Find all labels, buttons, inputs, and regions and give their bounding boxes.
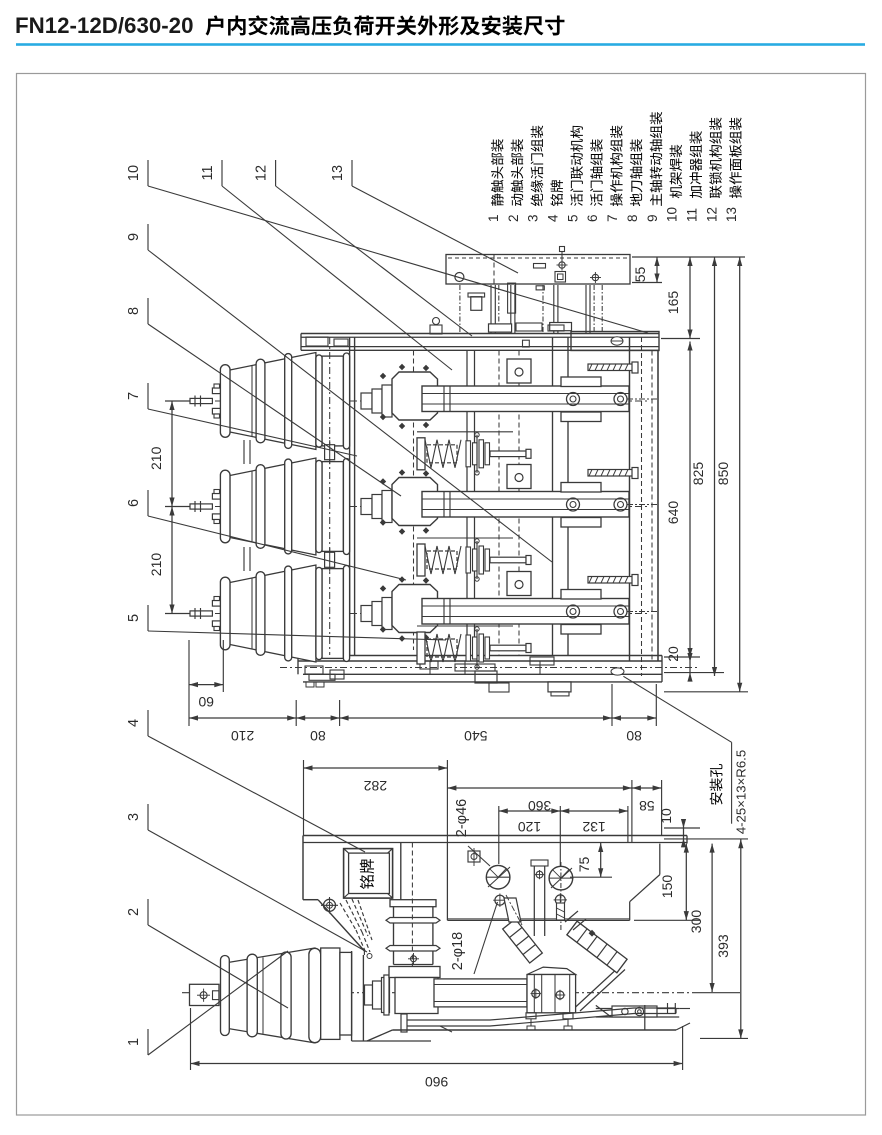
svg-text:5: 5 — [126, 614, 142, 622]
svg-text:210: 210 — [231, 728, 255, 744]
svg-text:11: 11 — [685, 208, 700, 222]
svg-text:132: 132 — [582, 819, 606, 835]
svg-text:640: 640 — [665, 501, 681, 525]
svg-text:540: 540 — [464, 728, 488, 744]
svg-text:850: 850 — [715, 462, 731, 486]
svg-text:55: 55 — [632, 267, 648, 283]
svg-text:58: 58 — [639, 798, 655, 814]
svg-text:6: 6 — [126, 499, 142, 507]
svg-text:5: 5 — [565, 214, 580, 222]
svg-text:9: 9 — [126, 233, 142, 241]
svg-text:1: 1 — [126, 1038, 142, 1046]
svg-text:6: 6 — [585, 214, 600, 222]
svg-text:11: 11 — [200, 165, 216, 180]
svg-text:300: 300 — [688, 910, 704, 934]
svg-text:165: 165 — [665, 291, 681, 315]
svg-text:9: 9 — [645, 214, 660, 222]
svg-text:4: 4 — [546, 214, 561, 222]
svg-text:3: 3 — [526, 214, 541, 222]
svg-text:210: 210 — [148, 446, 164, 470]
svg-text:13: 13 — [330, 165, 346, 181]
svg-text:7: 7 — [126, 392, 142, 400]
svg-text:4: 4 — [126, 719, 142, 727]
svg-text:960: 960 — [425, 1074, 449, 1090]
svg-text:7: 7 — [605, 214, 620, 222]
svg-text:210: 210 — [148, 553, 164, 577]
svg-text:20: 20 — [665, 646, 681, 662]
svg-text:8: 8 — [126, 307, 142, 315]
svg-text:282: 282 — [364, 778, 388, 794]
svg-text:2: 2 — [506, 214, 521, 222]
svg-text:150: 150 — [659, 875, 675, 899]
svg-text:8: 8 — [625, 214, 640, 222]
svg-text:80: 80 — [310, 728, 326, 744]
svg-text:2-φ18: 2-φ18 — [450, 932, 466, 970]
svg-text:10: 10 — [665, 207, 680, 222]
svg-text:10: 10 — [658, 808, 674, 824]
svg-text:12: 12 — [704, 207, 719, 222]
svg-text:10: 10 — [126, 165, 142, 181]
svg-text:12: 12 — [254, 165, 270, 181]
svg-text:2: 2 — [126, 908, 142, 916]
svg-text:4-25×13×R6.5: 4-25×13×R6.5 — [734, 750, 749, 834]
svg-text:13: 13 — [724, 207, 739, 222]
svg-text:393: 393 — [715, 934, 731, 958]
svg-text:1: 1 — [486, 214, 501, 222]
svg-text:FN12-12D/630-20: FN12-12D/630-20 — [15, 13, 193, 38]
svg-text:75: 75 — [576, 857, 592, 873]
svg-text:120: 120 — [518, 819, 542, 835]
svg-text:3: 3 — [126, 813, 142, 821]
svg-text:60: 60 — [198, 694, 214, 710]
svg-text:80: 80 — [626, 728, 642, 744]
svg-text:2-φ46: 2-φ46 — [454, 799, 470, 837]
svg-text:825: 825 — [690, 462, 706, 486]
